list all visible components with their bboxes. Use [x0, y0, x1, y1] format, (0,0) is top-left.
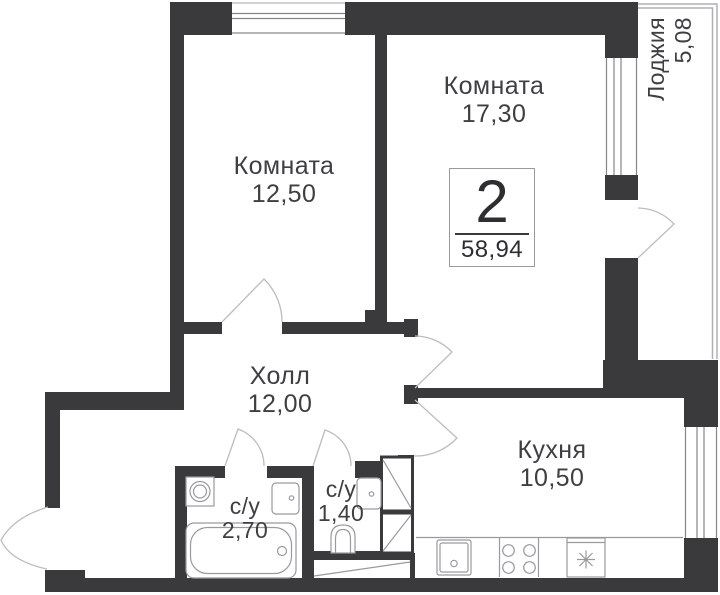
interior-wall — [175, 466, 225, 478]
interior-wall — [404, 319, 418, 337]
room-label-loggia: Лоджия 5,08 — [643, 15, 699, 127]
window-loggia — [605, 58, 638, 175]
exterior-wall — [45, 392, 184, 410]
room-label-hall: Холл 12,00 — [200, 362, 360, 418]
interior-wall — [355, 461, 383, 478]
toilet-icon — [331, 525, 355, 553]
total-area: 58,94 — [461, 236, 523, 264]
room-label-room-a: Комната 12,50 — [204, 152, 364, 208]
room-name: с/у — [281, 477, 401, 501]
room-name: Комната — [204, 152, 364, 180]
apartment-badge: 2 58,94 — [449, 168, 535, 267]
floor-plan: Комната 12,50 Комната 17,30 Лоджия 5,08 … — [0, 0, 720, 595]
exterior-wall — [605, 33, 638, 58]
room-area: 12,00 — [200, 390, 360, 418]
kitchen-fixtures — [416, 538, 683, 578]
exterior-wall — [684, 393, 718, 427]
room-area: 5,08 — [670, 17, 697, 127]
room-label-bath-small: с/у 1,40 — [281, 477, 401, 525]
door-swing-icon — [222, 279, 282, 322]
door-swing-icon — [225, 429, 264, 466]
door-swing-icon — [638, 208, 674, 258]
exterior-wall — [45, 410, 60, 508]
door-swing-icon — [415, 336, 452, 388]
room-label-kitchen: Кухня 10,50 — [472, 436, 632, 492]
room-area: 17,30 — [414, 100, 574, 128]
room-area: 12,50 — [204, 180, 364, 208]
badge-divider — [455, 233, 529, 235]
stove-icon — [500, 538, 539, 578]
interior-wall — [410, 553, 415, 578]
window-room-a — [232, 2, 345, 35]
exterior-wall — [170, 2, 233, 35]
exterior-wall — [170, 33, 184, 395]
room-label-room-b: Комната 17,30 — [414, 72, 574, 128]
fridge-icon — [567, 538, 605, 577]
interior-wall — [375, 33, 387, 327]
exterior-wall — [345, 2, 638, 35]
exterior-wall — [85, 578, 686, 592]
room-name: Кухня — [472, 436, 632, 464]
interior-wall — [417, 388, 686, 398]
door-swing-icon — [313, 430, 351, 466]
rooms-count: 2 — [475, 172, 508, 232]
window-kitchen — [684, 427, 718, 538]
exterior-wall — [605, 258, 638, 360]
interior-wall — [175, 322, 222, 334]
door-swing-icon — [414, 400, 457, 456]
kitchen-sink-icon — [437, 540, 471, 575]
room-area: 1,40 — [281, 501, 401, 525]
exterior-wall — [684, 538, 718, 592]
exterior-wall — [45, 570, 85, 592]
exterior-wall — [605, 175, 638, 200]
room-name: Лоджия — [643, 17, 670, 127]
room-name: Комната — [414, 72, 574, 100]
room-area: 10,50 — [472, 464, 632, 492]
interior-wall — [282, 322, 415, 334]
room-name: Холл — [200, 362, 360, 390]
door-swing-icon — [1, 507, 48, 569]
